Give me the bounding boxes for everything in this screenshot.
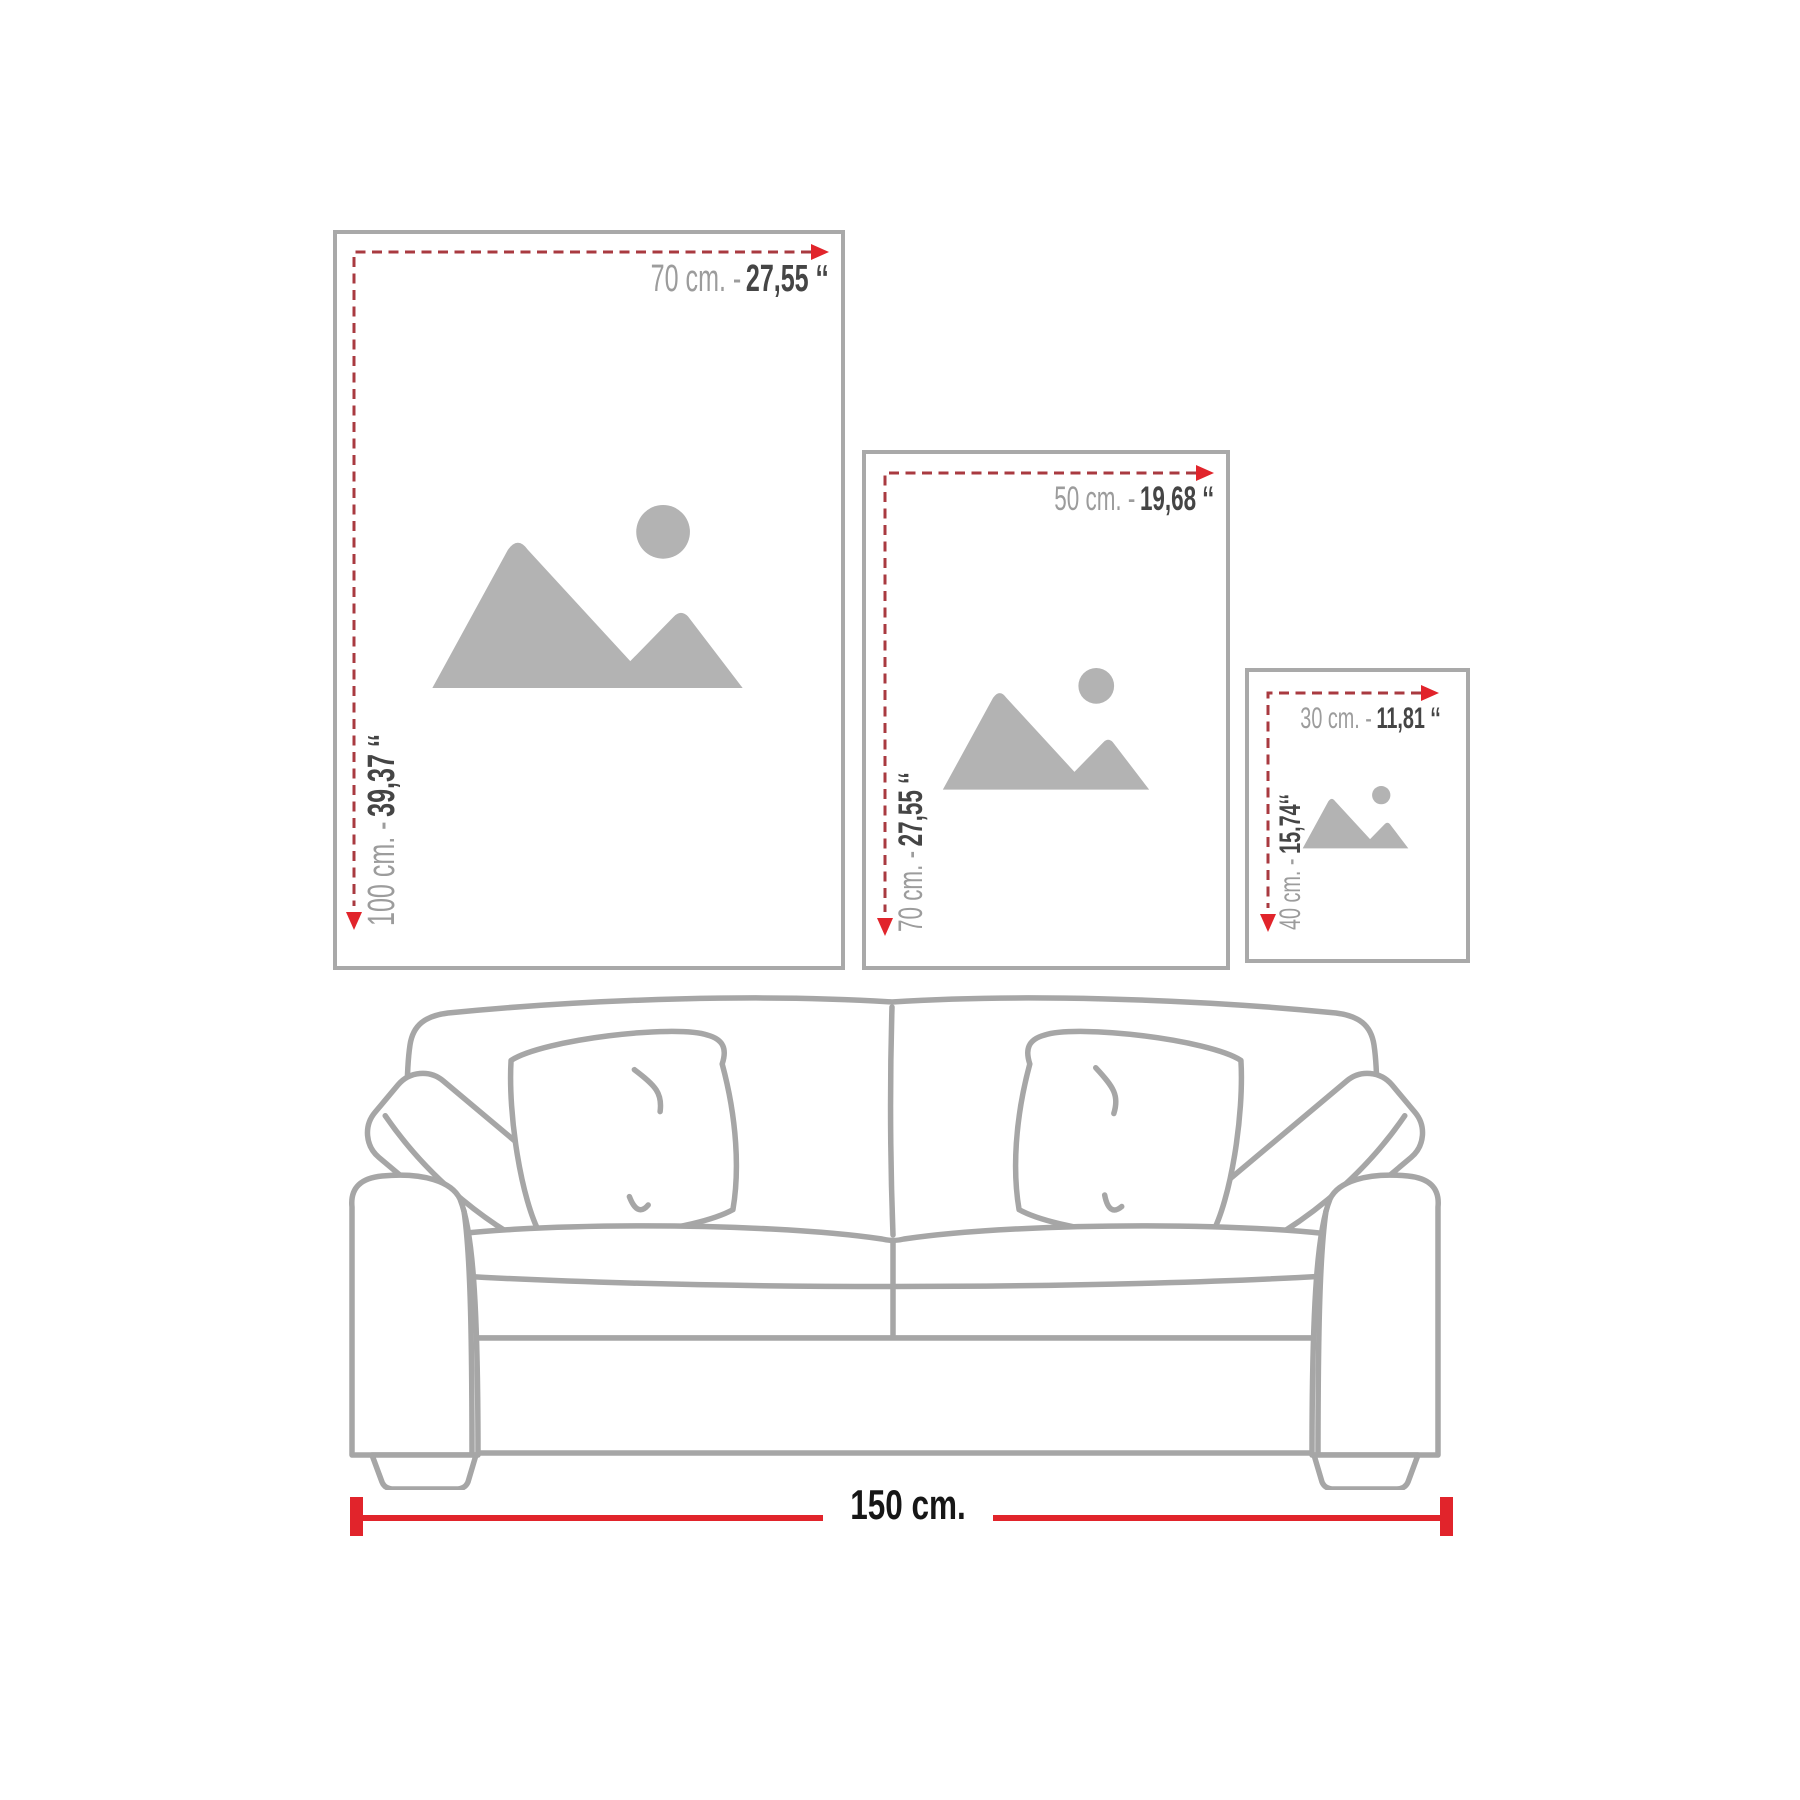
size-frame-large: 70 cm. -27,55 ‘‘ 100 cm. -39,37 ‘‘ xyxy=(333,230,845,970)
width-dimension-label: 50 cm. -19,68 ‘‘ xyxy=(1054,482,1214,516)
sofa-armrest-left xyxy=(352,1175,478,1455)
width-cm-text: 70 cm. - xyxy=(651,258,742,300)
width-cm-text: 30 cm. - xyxy=(1301,702,1373,735)
width-inch-text: 11,81 ‘‘ xyxy=(1377,702,1441,735)
sofa-backrest-split xyxy=(891,1007,893,1235)
height-inch-text: 39,37 ‘‘ xyxy=(361,734,403,817)
sun-icon xyxy=(1372,786,1390,804)
width-inch-text: 19,68 ‘‘ xyxy=(1140,480,1214,518)
sofa-foot-left xyxy=(372,1455,476,1489)
image-placeholder-icon xyxy=(1302,786,1409,849)
sofa-pillow-right xyxy=(1009,1025,1246,1243)
height-cm-text: 100 cm. - xyxy=(361,821,403,926)
height-dimension-label: 70 cm. -27,55 ‘‘ xyxy=(894,772,928,932)
size-frame-small: 30 cm. -11,81 ‘‘ 40 cm. -15,74‘‘ xyxy=(1245,668,1470,963)
ruler-line-right xyxy=(993,1515,1442,1521)
arrow-down-icon xyxy=(877,918,893,936)
sun-icon xyxy=(1078,668,1114,704)
image-placeholder-icon xyxy=(430,505,745,690)
height-inch-text: 27,55 ‘‘ xyxy=(892,772,930,846)
sofa-armrest-right xyxy=(1312,1175,1438,1455)
height-dimension-label: 100 cm. -39,37 ‘‘ xyxy=(363,734,401,926)
image-placeholder-icon xyxy=(941,668,1151,791)
ruler-endcap-right xyxy=(1440,1497,1453,1536)
sofa-illustration xyxy=(330,985,1460,1490)
ruler-line-left xyxy=(361,1515,823,1521)
width-inch-text: 27,55 ‘‘ xyxy=(746,258,829,300)
size-guide-canvas: { "frames": [ { "name": "large", "width_… xyxy=(0,0,1800,1800)
sun-icon xyxy=(636,505,690,559)
sofa-base xyxy=(430,1338,1356,1453)
size-frame-medium: 50 cm. -19,68 ‘‘ 70 cm. -27,55 ‘‘ xyxy=(862,450,1230,970)
sofa-width-label: 150 cm. xyxy=(838,1484,978,1526)
height-cm-text: 40 cm. - xyxy=(1274,858,1307,930)
arrow-right-icon xyxy=(1196,465,1214,481)
width-dimension-label: 70 cm. -27,55 ‘‘ xyxy=(651,260,829,298)
width-dimension-label: 30 cm. -11,81 ‘‘ xyxy=(1301,704,1441,734)
arrow-right-icon xyxy=(1421,685,1439,701)
sofa-foot-right xyxy=(1314,1455,1418,1489)
height-cm-text: 70 cm. - xyxy=(892,851,930,932)
arrow-down-icon xyxy=(346,912,362,930)
width-cm-text: 50 cm. - xyxy=(1054,480,1135,518)
sofa-pillow-left xyxy=(506,1025,743,1243)
